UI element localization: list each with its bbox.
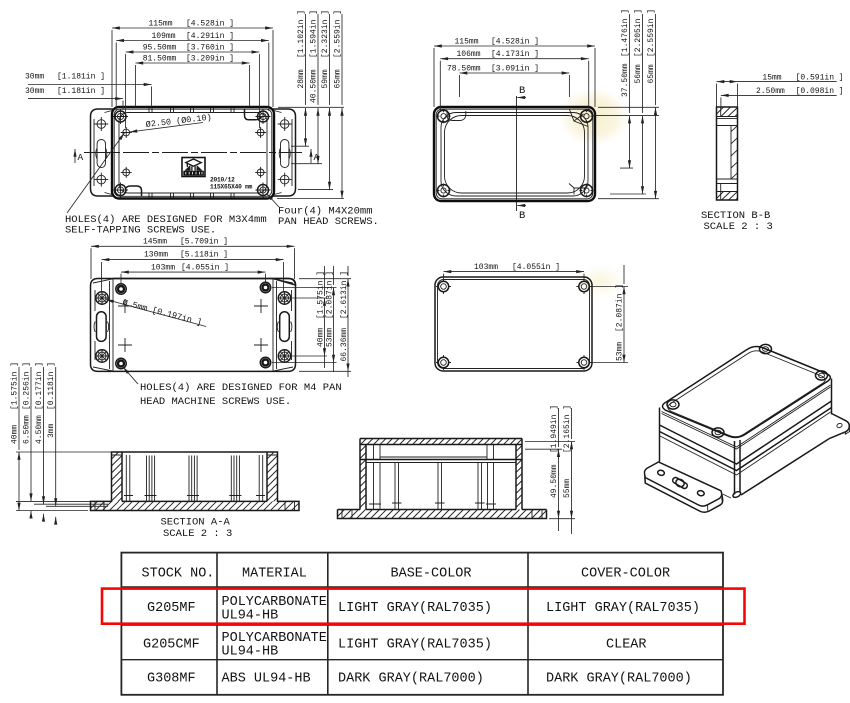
svg-text:103mm: 103mm bbox=[151, 263, 175, 272]
svg-text:2.50mm: 2.50mm bbox=[756, 87, 785, 96]
svg-text:95.50mm: 95.50mm bbox=[143, 44, 177, 53]
svg-text:[2.087in ]: [2.087in ] bbox=[616, 284, 625, 332]
svg-text:[2.165in ]: [2.165in ] bbox=[563, 405, 572, 453]
svg-text:[1.102in ]: [1.102in ] bbox=[297, 10, 306, 58]
svg-text:[1.181in ]: [1.181in ] bbox=[57, 73, 105, 82]
svg-text:BASE-COLOR: BASE-COLOR bbox=[391, 567, 472, 582]
svg-text:30mm: 30mm bbox=[25, 73, 44, 82]
svg-text:[2.205in ]: [2.205in ] bbox=[634, 9, 643, 57]
svg-text:[4.528in ]: [4.528in ] bbox=[491, 38, 539, 47]
svg-text:[2.323in ]: [2.323in ] bbox=[321, 10, 330, 58]
svg-text:[3.091in ]: [3.091in ] bbox=[491, 65, 539, 74]
svg-text:[3.209in ]: [3.209in ] bbox=[186, 55, 234, 64]
svg-text:COVER-COLOR: COVER-COLOR bbox=[581, 567, 670, 582]
svg-text:G205CMF: G205CMF bbox=[143, 638, 200, 653]
svg-text:PAN HEAD SCREWS.: PAN HEAD SCREWS. bbox=[278, 216, 379, 228]
svg-text:3mm: 3mm bbox=[47, 423, 56, 438]
svg-text:2010/12: 2010/12 bbox=[210, 177, 235, 184]
svg-text:[1.476in ]: [1.476in ] bbox=[621, 9, 630, 57]
svg-text:40mm: 40mm bbox=[317, 328, 326, 347]
svg-text:SCALE 2 : 3: SCALE 2 : 3 bbox=[704, 221, 773, 233]
svg-text:G205MF: G205MF bbox=[147, 601, 196, 616]
svg-text:40mm: 40mm bbox=[11, 425, 20, 444]
svg-text:[2.087in ]: [2.087in ] bbox=[326, 271, 335, 319]
svg-text:15mm: 15mm bbox=[762, 73, 781, 82]
svg-text:[1.575in ]: [1.575in ] bbox=[317, 271, 326, 319]
svg-text:LIGHT GRAY(RAL7035): LIGHT GRAY(RAL7035) bbox=[546, 601, 700, 616]
svg-text:CLEAR: CLEAR bbox=[606, 638, 647, 653]
svg-text:HOLES(4) ARE DESIGNED FOR M4 P: HOLES(4) ARE DESIGNED FOR M4 PAN bbox=[140, 382, 342, 394]
svg-text:ABS UL94-HB: ABS UL94-HB bbox=[222, 672, 311, 687]
svg-text:65mm: 65mm bbox=[334, 69, 343, 88]
svg-text:LIGHT GRAY(RAL7035): LIGHT GRAY(RAL7035) bbox=[338, 601, 492, 616]
svg-text:[2.559in ]: [2.559in ] bbox=[647, 9, 656, 57]
svg-text:DARK GRAY(RAL7000): DARK GRAY(RAL7000) bbox=[338, 672, 484, 687]
svg-text:SECTION A-A: SECTION A-A bbox=[161, 517, 231, 529]
svg-text:B: B bbox=[519, 210, 525, 222]
svg-text:[0.177in ]: [0.177in ] bbox=[35, 362, 44, 410]
svg-text:UL94-HB: UL94-HB bbox=[222, 609, 279, 624]
svg-text:[0.256in ]: [0.256in ] bbox=[23, 362, 32, 410]
svg-text:[1.181in ]: [1.181in ] bbox=[57, 87, 105, 96]
svg-text:B: B bbox=[519, 85, 525, 97]
svg-text:[0.098in ]: [0.098in ] bbox=[796, 87, 844, 96]
svg-text:30mm: 30mm bbox=[25, 87, 44, 96]
svg-text:115mm: 115mm bbox=[149, 20, 173, 29]
svg-text:78.50mm: 78.50mm bbox=[447, 65, 481, 74]
svg-text:65mm: 65mm bbox=[647, 64, 656, 83]
svg-text:81.50mm: 81.50mm bbox=[143, 55, 177, 64]
svg-text:A: A bbox=[78, 152, 84, 163]
svg-text:DARK GRAY(RAL7000): DARK GRAY(RAL7000) bbox=[546, 672, 692, 687]
svg-text:[4.291in ]: [4.291in ] bbox=[186, 32, 234, 41]
svg-text:HEAD MACHINE SCREWS USE.: HEAD MACHINE SCREWS USE. bbox=[140, 396, 291, 408]
svg-text:40.50mm: 40.50mm bbox=[310, 69, 319, 103]
svg-text:[4.055in ]: [4.055in ] bbox=[181, 263, 229, 272]
svg-text:115mm: 115mm bbox=[455, 38, 479, 47]
svg-text:G308MF: G308MF bbox=[147, 672, 196, 687]
svg-text:56mm: 56mm bbox=[634, 64, 643, 83]
svg-text:145mm: 145mm bbox=[143, 238, 167, 247]
svg-text:UL94-HB: UL94-HB bbox=[222, 645, 279, 660]
svg-text:[2.559in ]: [2.559in ] bbox=[334, 10, 343, 58]
svg-text:[3.760in ]: [3.760in ] bbox=[186, 44, 234, 53]
svg-text:[1.575in ]: [1.575in ] bbox=[11, 362, 20, 410]
svg-text:[4.173in ]: [4.173in ] bbox=[491, 50, 539, 59]
svg-text:66.36mm: 66.36mm bbox=[340, 328, 349, 362]
svg-text:28mm: 28mm bbox=[297, 69, 306, 88]
svg-text:SCALE 2 : 3: SCALE 2 : 3 bbox=[163, 528, 232, 540]
svg-text:[0.118in ]: [0.118in ] bbox=[47, 362, 56, 410]
svg-text:106mm: 106mm bbox=[457, 50, 481, 59]
svg-text:[5.709in ]: [5.709in ] bbox=[180, 238, 228, 247]
svg-text:4.50mm: 4.50mm bbox=[35, 415, 44, 444]
svg-text:[5.118in ]: [5.118in ] bbox=[180, 251, 228, 260]
svg-text:59mm: 59mm bbox=[321, 69, 330, 88]
svg-text:A: A bbox=[314, 152, 320, 163]
svg-text:MATERIAL: MATERIAL bbox=[242, 567, 307, 582]
svg-text:115X65X40 mm: 115X65X40 mm bbox=[210, 184, 253, 191]
svg-text:53mm: 53mm bbox=[326, 328, 335, 347]
svg-text:109mm: 109mm bbox=[152, 32, 176, 41]
svg-text:[2.613in ]: [2.613in ] bbox=[340, 271, 349, 319]
svg-text:[1.594in ]: [1.594in ] bbox=[310, 10, 319, 58]
svg-text:STOCK NO.: STOCK NO. bbox=[142, 567, 215, 582]
svg-text:103mm: 103mm bbox=[474, 263, 498, 272]
svg-text:SELF-TAPPING SCREWS USE.: SELF-TAPPING SCREWS USE. bbox=[65, 225, 216, 237]
svg-text:[0.591in ]: [0.591in ] bbox=[796, 73, 844, 82]
svg-text:[4.055in ]: [4.055in ] bbox=[512, 263, 560, 272]
svg-text:6.50mm: 6.50mm bbox=[23, 415, 32, 444]
svg-text:53mm: 53mm bbox=[616, 342, 625, 361]
svg-text:55mm: 55mm bbox=[563, 479, 572, 498]
svg-text:[1.949in ]: [1.949in ] bbox=[550, 405, 559, 453]
svg-text:130mm: 130mm bbox=[144, 251, 168, 260]
svg-text:49.50mm: 49.50mm bbox=[550, 464, 559, 498]
svg-text:37.50mm: 37.50mm bbox=[621, 63, 630, 97]
svg-text:LIGHT GRAY(RAL7035): LIGHT GRAY(RAL7035) bbox=[338, 638, 492, 653]
svg-text:[4.528in ]: [4.528in ] bbox=[186, 20, 234, 29]
